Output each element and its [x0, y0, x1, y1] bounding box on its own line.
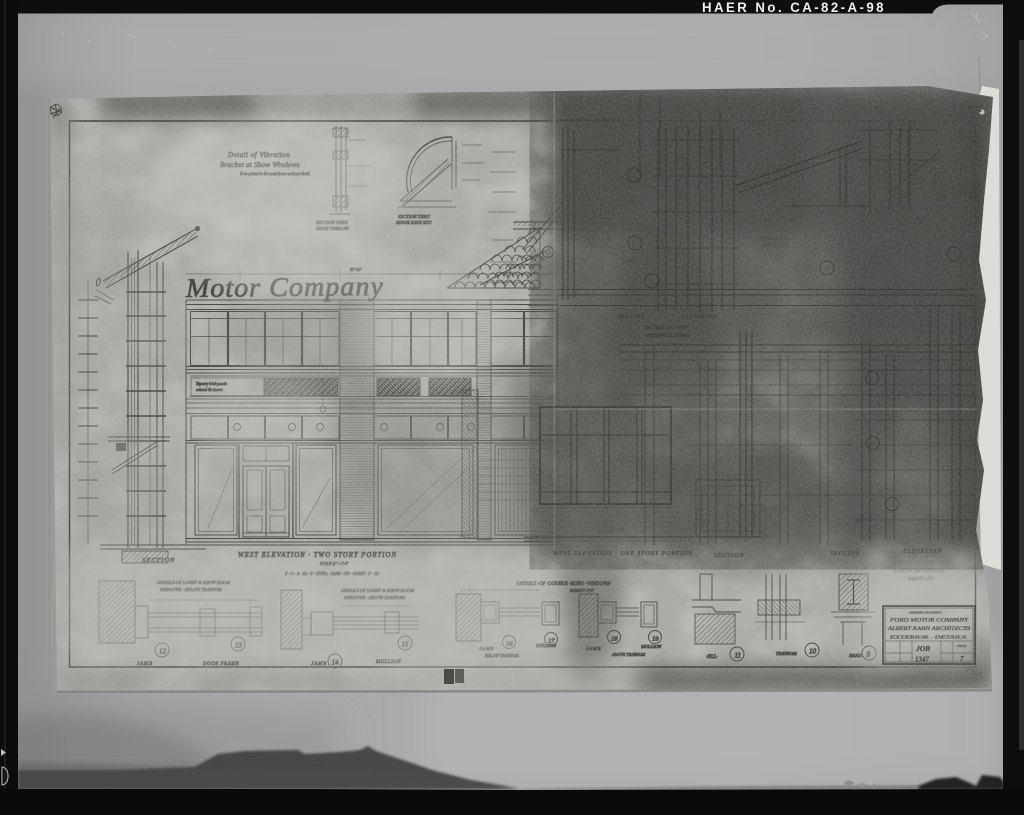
svg-text:HAER No. CA-82-A-98: HAER No. CA-82-A-98: [702, 0, 886, 15]
